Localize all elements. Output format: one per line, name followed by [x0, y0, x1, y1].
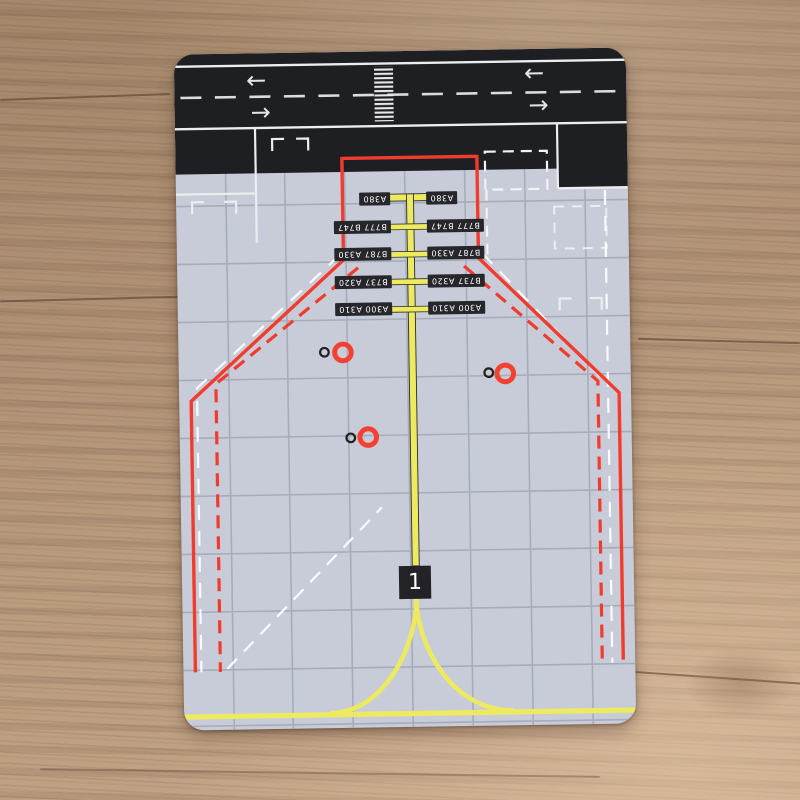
runway-arrow-right-icon: → — [528, 93, 548, 117]
aircraft-type-label: B737 A320 — [334, 275, 392, 289]
white-clearance-dashes — [194, 190, 612, 672]
aircraft-type-label: B787 A330 — [427, 246, 485, 260]
wood-crack — [40, 768, 600, 778]
aircraft-type-label: B777 B747 — [333, 220, 391, 234]
runway-asphalt — [174, 47, 628, 194]
runway-arrow-left-icon: ← — [246, 68, 266, 92]
photo-of-taxiway-guidance-mat: ← → ← → A380 B777 B747 B787 A330 B737 A3… — [0, 0, 800, 800]
stand-box-top — [342, 156, 477, 158]
lead-in-curve-left — [328, 599, 418, 713]
apron-taxilane-line — [184, 707, 636, 719]
aircraft-type-label: A300 A310 — [334, 302, 392, 316]
lead-in-curve-right — [416, 597, 514, 711]
aircraft-type-label: A380 — [426, 191, 457, 204]
apron-line-left — [176, 192, 256, 195]
wood-knot — [685, 648, 795, 718]
bay-number: 1 — [408, 570, 422, 595]
aircraft-type-label: B777 B747 — [426, 219, 484, 233]
aircraft-type-label: B787 A330 — [333, 247, 391, 261]
envelope-right-dashed — [464, 264, 602, 665]
taxiway-guidance-mat: ← → ← → A380 B777 B747 B787 A330 B737 A3… — [174, 47, 637, 730]
wood-crack — [0, 296, 185, 303]
runway-arrow-left-icon: ← — [524, 61, 544, 85]
mat-markings — [174, 47, 637, 730]
bay-number-badge: 1 — [399, 566, 432, 599]
runway-arrow-right-icon: → — [250, 100, 270, 124]
runway-threshold-piano-keys — [374, 66, 394, 121]
aircraft-type-label: B737 A320 — [427, 274, 485, 288]
wood-crack — [0, 93, 170, 101]
aircraft-type-label: A380 — [359, 192, 390, 205]
wood-crack — [638, 338, 800, 344]
envelope-left-solid — [187, 157, 350, 672]
aircraft-type-label: A300 A310 — [428, 301, 486, 315]
